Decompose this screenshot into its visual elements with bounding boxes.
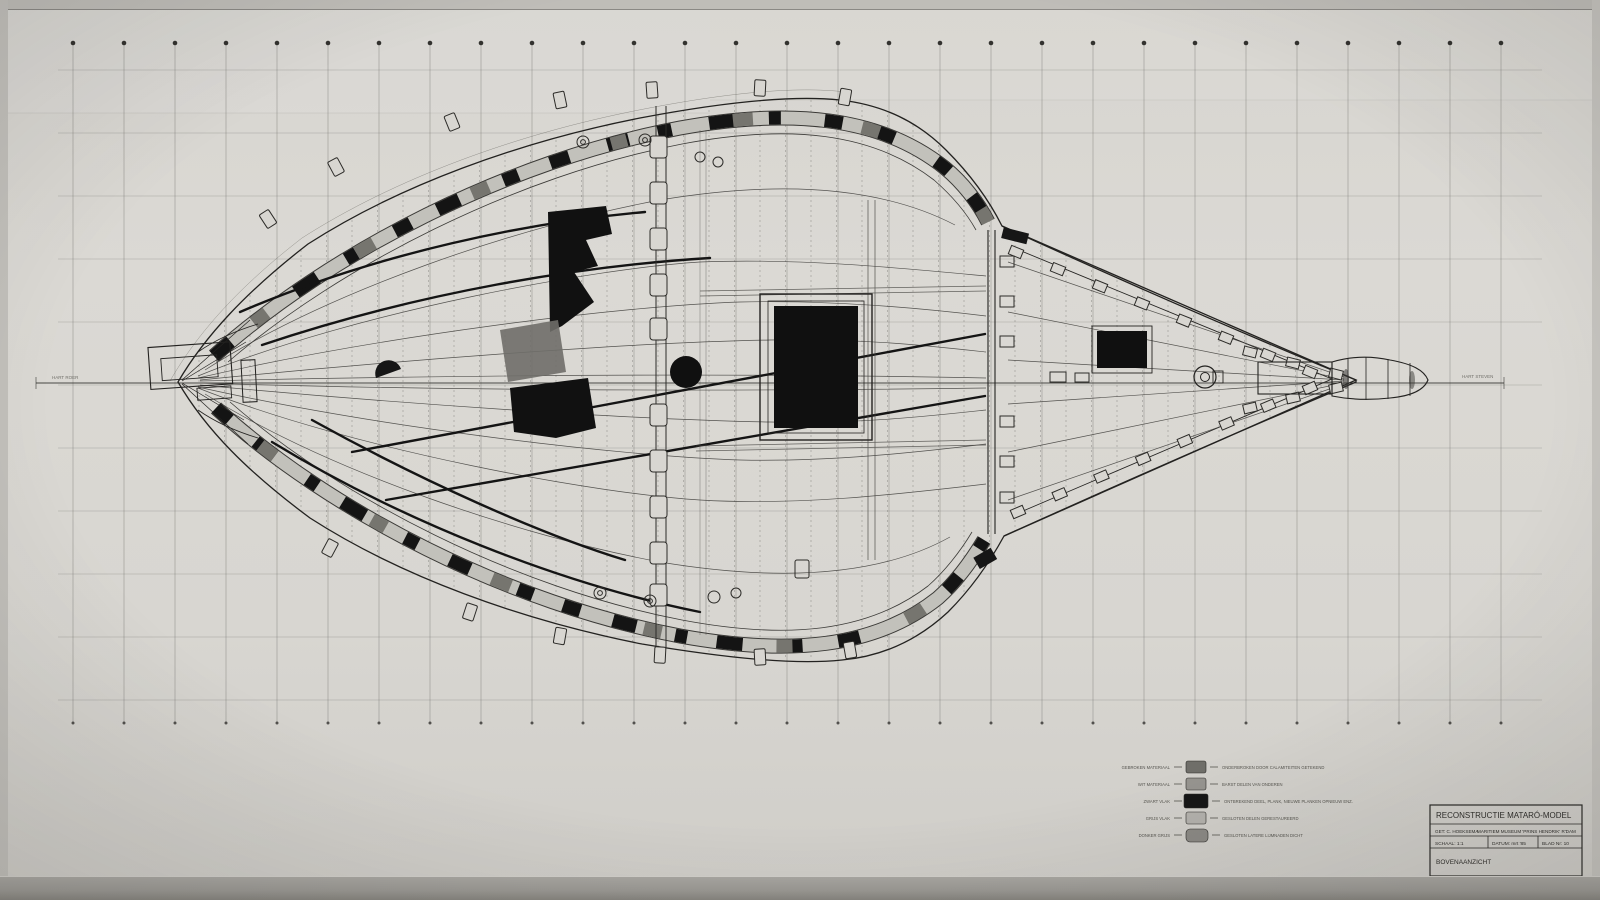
sheet-edges xyxy=(0,0,1600,900)
drawing-sheet: GEBROKEN MATERIAAL ONDERBROKEN DOOR CALA… xyxy=(0,0,1600,900)
ship-plan-drawing: GEBROKEN MATERIAAL ONDERBROKEN DOOR CALA… xyxy=(0,0,1600,900)
